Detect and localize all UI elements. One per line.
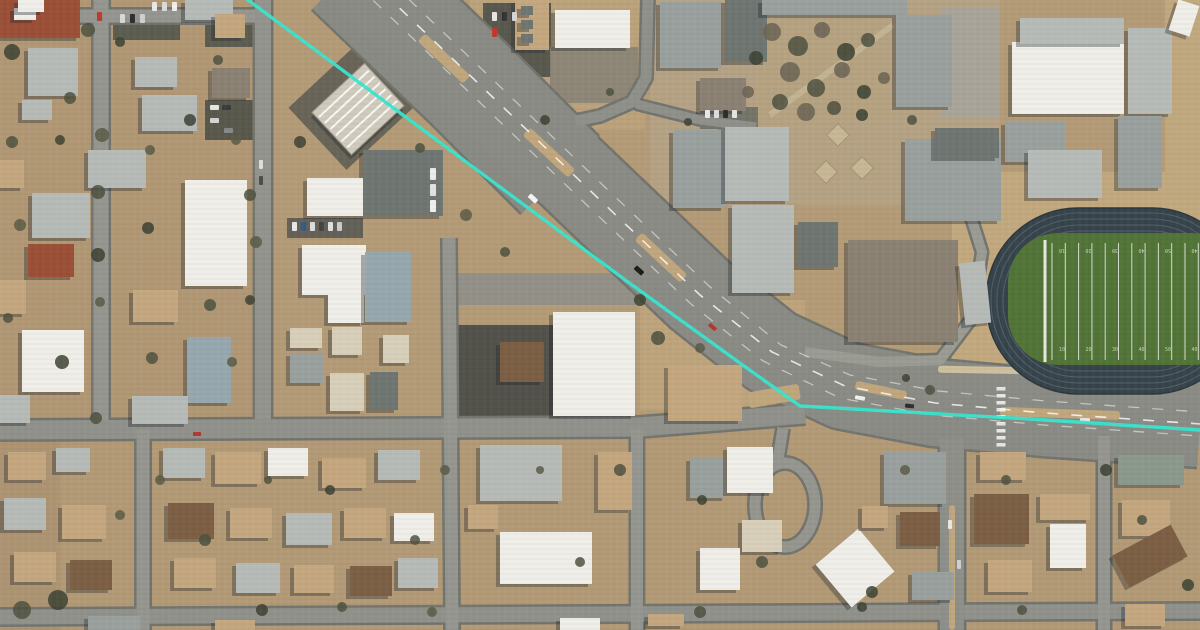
building bbox=[56, 448, 90, 472]
car bbox=[193, 432, 201, 436]
building bbox=[328, 295, 364, 323]
building bbox=[163, 448, 205, 478]
building bbox=[168, 503, 214, 539]
tree bbox=[155, 475, 165, 485]
car bbox=[292, 222, 297, 231]
car bbox=[310, 222, 315, 231]
building bbox=[286, 513, 332, 545]
car bbox=[259, 160, 263, 169]
tree bbox=[788, 36, 808, 56]
building bbox=[215, 14, 245, 38]
tree bbox=[797, 103, 815, 121]
tree bbox=[90, 412, 102, 424]
car bbox=[152, 2, 157, 11]
building bbox=[553, 312, 635, 416]
tree bbox=[694, 606, 706, 618]
yard-number: 50 bbox=[1165, 247, 1171, 253]
building bbox=[14, 552, 56, 582]
building bbox=[187, 337, 231, 403]
building bbox=[365, 252, 411, 322]
car bbox=[732, 110, 737, 118]
building bbox=[1118, 116, 1162, 188]
tree bbox=[91, 248, 105, 262]
tree bbox=[6, 136, 18, 148]
tree bbox=[440, 465, 450, 475]
building bbox=[668, 365, 742, 421]
yard-number: 40 bbox=[1191, 247, 1197, 253]
building bbox=[1050, 524, 1086, 568]
building bbox=[974, 494, 1029, 544]
building bbox=[500, 342, 544, 382]
tree bbox=[861, 33, 875, 47]
car bbox=[430, 168, 436, 180]
car bbox=[210, 118, 219, 123]
car bbox=[492, 28, 497, 37]
building bbox=[268, 448, 308, 476]
building bbox=[215, 452, 261, 484]
tree bbox=[772, 94, 788, 110]
car bbox=[714, 110, 719, 118]
yard-number: 50 bbox=[1165, 347, 1171, 353]
car bbox=[430, 200, 436, 212]
building bbox=[212, 68, 250, 98]
tree bbox=[460, 209, 472, 221]
tree bbox=[540, 115, 550, 125]
building bbox=[215, 620, 255, 630]
building bbox=[135, 57, 177, 87]
tree bbox=[410, 535, 420, 545]
building bbox=[862, 506, 888, 528]
building bbox=[912, 572, 954, 600]
building bbox=[62, 505, 106, 539]
car bbox=[512, 12, 517, 21]
building bbox=[307, 178, 363, 216]
building bbox=[1118, 455, 1184, 485]
tree bbox=[337, 602, 347, 612]
building bbox=[294, 565, 334, 593]
building bbox=[555, 10, 630, 48]
tree bbox=[697, 495, 707, 505]
tree bbox=[780, 62, 800, 82]
car bbox=[210, 105, 219, 110]
building bbox=[322, 458, 366, 488]
tree bbox=[857, 85, 871, 99]
building bbox=[344, 508, 386, 538]
tree bbox=[536, 466, 544, 474]
building bbox=[0, 280, 26, 314]
tree bbox=[856, 109, 868, 121]
yard-number: 40 bbox=[1191, 347, 1197, 353]
building bbox=[732, 205, 794, 293]
tree bbox=[763, 23, 781, 41]
tree bbox=[834, 62, 850, 78]
parking-lot bbox=[455, 273, 635, 305]
building bbox=[884, 452, 946, 504]
building bbox=[330, 373, 364, 411]
tree bbox=[415, 143, 425, 153]
building bbox=[88, 616, 140, 630]
tree bbox=[837, 43, 855, 61]
road bbox=[449, 238, 452, 630]
building bbox=[521, 20, 533, 29]
tree bbox=[651, 331, 665, 345]
car bbox=[430, 184, 436, 196]
car bbox=[328, 222, 333, 231]
building bbox=[521, 34, 533, 43]
building bbox=[660, 2, 722, 68]
parking-lot bbox=[287, 218, 363, 238]
tree bbox=[857, 602, 867, 612]
building bbox=[28, 48, 78, 96]
car bbox=[957, 560, 961, 569]
yard-number: 20 bbox=[1085, 247, 1091, 253]
car bbox=[705, 110, 710, 118]
tree bbox=[245, 295, 255, 305]
building bbox=[598, 452, 632, 510]
tree bbox=[742, 86, 754, 98]
car bbox=[140, 14, 145, 23]
tree bbox=[227, 357, 237, 367]
tree bbox=[866, 586, 878, 598]
building bbox=[22, 100, 52, 120]
building bbox=[398, 558, 438, 588]
car bbox=[502, 12, 507, 21]
tree bbox=[95, 297, 105, 307]
building bbox=[28, 244, 74, 277]
tree bbox=[142, 222, 154, 234]
building bbox=[370, 372, 398, 410]
building bbox=[700, 78, 746, 111]
tree bbox=[606, 88, 614, 96]
building bbox=[1012, 42, 1124, 114]
tree bbox=[684, 118, 692, 126]
tree bbox=[878, 72, 890, 84]
tree bbox=[204, 299, 216, 311]
building bbox=[133, 290, 178, 322]
tree bbox=[756, 556, 768, 568]
building bbox=[1125, 604, 1165, 626]
tree bbox=[575, 557, 585, 567]
tree bbox=[3, 313, 13, 323]
tree bbox=[184, 114, 196, 126]
car bbox=[319, 222, 324, 231]
building bbox=[290, 328, 322, 348]
car bbox=[222, 105, 231, 110]
car bbox=[723, 110, 728, 118]
tree bbox=[749, 51, 763, 65]
car bbox=[162, 2, 167, 11]
tree bbox=[264, 476, 272, 484]
building bbox=[1020, 18, 1124, 44]
yard-number: 30 bbox=[1112, 347, 1118, 353]
building bbox=[0, 395, 30, 423]
tree bbox=[1137, 515, 1147, 525]
building bbox=[673, 130, 725, 208]
building bbox=[560, 618, 600, 630]
building bbox=[302, 245, 366, 295]
building bbox=[332, 327, 362, 355]
building bbox=[132, 396, 188, 424]
tree bbox=[199, 534, 211, 546]
building bbox=[988, 560, 1032, 592]
tree bbox=[900, 465, 910, 475]
tree bbox=[13, 601, 31, 619]
car bbox=[97, 12, 102, 21]
tree bbox=[827, 101, 841, 115]
building bbox=[1028, 150, 1102, 198]
building bbox=[174, 558, 216, 588]
building bbox=[230, 508, 272, 538]
yard-number: 40 bbox=[1138, 247, 1144, 253]
building bbox=[896, 15, 952, 107]
building bbox=[383, 335, 409, 363]
building bbox=[1128, 28, 1172, 114]
tree bbox=[1100, 464, 1112, 476]
tree bbox=[925, 385, 935, 395]
building bbox=[0, 160, 24, 188]
tree bbox=[695, 343, 705, 353]
building bbox=[88, 150, 146, 188]
tree bbox=[614, 464, 626, 476]
building bbox=[290, 353, 324, 383]
tree bbox=[427, 607, 437, 617]
tree bbox=[244, 189, 256, 201]
car bbox=[224, 128, 233, 133]
satellite-map[interactable]: 101020203030404050504040 bbox=[0, 0, 1200, 630]
tree bbox=[48, 590, 68, 610]
building bbox=[468, 505, 498, 529]
building bbox=[762, 0, 907, 15]
tree bbox=[55, 355, 69, 369]
car bbox=[120, 14, 125, 23]
building bbox=[70, 560, 112, 590]
tree bbox=[55, 135, 65, 145]
tree bbox=[1182, 579, 1194, 591]
car bbox=[948, 520, 952, 529]
car bbox=[337, 222, 342, 231]
tree bbox=[807, 79, 825, 97]
tree bbox=[14, 219, 26, 231]
building bbox=[1040, 494, 1090, 520]
tree bbox=[902, 374, 910, 382]
building bbox=[935, 128, 999, 158]
tree bbox=[250, 236, 262, 248]
tree bbox=[500, 247, 510, 257]
tree bbox=[213, 55, 223, 65]
car bbox=[259, 176, 263, 185]
tree bbox=[1017, 605, 1027, 615]
tree bbox=[115, 510, 125, 520]
yard-number: 40 bbox=[1138, 347, 1144, 353]
car bbox=[172, 2, 177, 11]
car bbox=[301, 222, 306, 231]
tree bbox=[814, 22, 830, 38]
field-layer: 101020203030404050504040 bbox=[986, 208, 1200, 394]
tree bbox=[294, 136, 306, 148]
building bbox=[350, 566, 392, 596]
building bbox=[521, 6, 533, 15]
building bbox=[185, 180, 247, 286]
tree bbox=[91, 185, 105, 199]
tree bbox=[1001, 475, 1011, 485]
tree bbox=[231, 135, 241, 145]
building bbox=[4, 498, 46, 530]
building bbox=[22, 330, 84, 392]
tree bbox=[256, 604, 268, 616]
tree bbox=[145, 145, 155, 155]
car bbox=[130, 14, 135, 23]
building bbox=[648, 614, 684, 626]
building bbox=[480, 445, 562, 501]
tree bbox=[95, 128, 109, 142]
building bbox=[690, 458, 726, 498]
map-viewport[interactable]: 101020203030404050504040 bbox=[0, 0, 1200, 630]
yard-number: 20 bbox=[1085, 347, 1091, 353]
tree bbox=[115, 37, 125, 47]
tree bbox=[4, 44, 20, 60]
yard-number: 10 bbox=[1059, 347, 1065, 353]
building bbox=[8, 452, 46, 480]
building bbox=[980, 452, 1026, 480]
yard-number: 30 bbox=[1112, 247, 1118, 253]
building bbox=[900, 512, 940, 546]
tree bbox=[907, 115, 917, 125]
building bbox=[725, 127, 789, 201]
car bbox=[492, 12, 497, 21]
building bbox=[378, 450, 420, 480]
tree bbox=[146, 352, 158, 364]
yard-number: 10 bbox=[1059, 247, 1065, 253]
tree bbox=[64, 92, 76, 104]
tree bbox=[81, 23, 95, 37]
building bbox=[798, 222, 838, 267]
building bbox=[727, 447, 773, 493]
building bbox=[18, 0, 44, 12]
building bbox=[700, 548, 740, 590]
parking-lot bbox=[550, 47, 638, 103]
building bbox=[848, 240, 958, 342]
tree bbox=[325, 485, 335, 495]
building bbox=[236, 563, 280, 593]
building bbox=[742, 520, 782, 552]
building bbox=[32, 193, 90, 238]
